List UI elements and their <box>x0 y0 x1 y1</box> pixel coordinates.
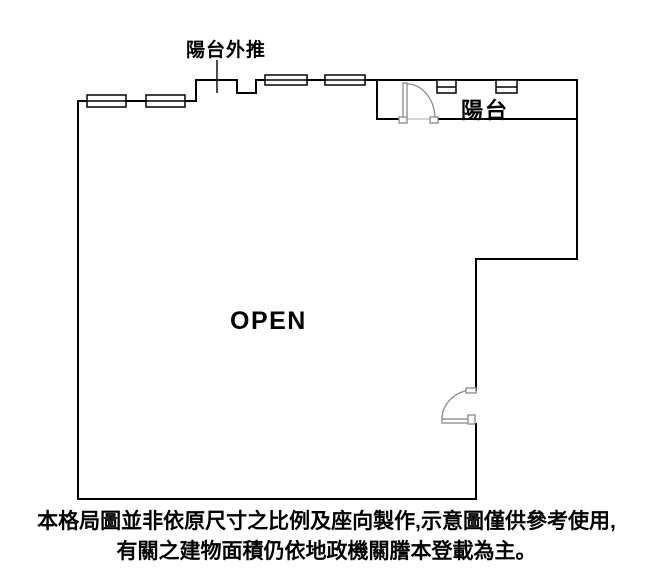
window-symbols-group <box>87 75 517 107</box>
window-symbol-top-mid-1 <box>265 75 307 85</box>
balcony-door-jamb-left <box>399 117 407 123</box>
bottom-right-door-symbol <box>442 388 476 424</box>
disclaimer-line-1: 本格局圖並非依原尺寸之比例及座向製作,示意圖僅供參考使用, <box>0 507 653 537</box>
floor-plan-page: 陽台外推 陽台 OPEN 本格局圖並非依原尺寸之比例及座向製作,示意圖僅供參考使… <box>0 0 653 580</box>
window-symbol-top-left-1 <box>87 95 126 107</box>
bottom-right-door-jamb-top <box>466 388 476 393</box>
window-symbol-top-left-2 <box>146 95 185 107</box>
disclaimer-line-2: 有關之建物面積仍依地政機關謄本登載為主。 <box>0 537 653 567</box>
balcony-label: 陽台 <box>461 93 509 125</box>
balcony-pushout-annotation: 陽台外推 <box>186 35 266 62</box>
balcony-door-jamb-right <box>430 117 438 123</box>
room-label-open: OPEN <box>230 307 307 336</box>
window-symbol-balcony-1 <box>437 80 456 93</box>
floor-plan-drawing <box>0 0 653 580</box>
wall-outline-group <box>78 80 577 499</box>
wall-outline <box>78 80 577 499</box>
balcony-door-swing-arc <box>407 84 435 119</box>
balcony-door-leaf <box>403 83 407 119</box>
disclaimer-text: 本格局圖並非依原尺寸之比例及座向製作,示意圖僅供參考使用, 有關之建物面積仍依地… <box>0 507 653 567</box>
window-symbol-balcony-2 <box>496 80 517 93</box>
bottom-right-door-jamb-bottom <box>468 415 475 424</box>
balcony-door-symbol <box>399 83 438 123</box>
window-symbol-top-mid-2 <box>325 75 365 85</box>
